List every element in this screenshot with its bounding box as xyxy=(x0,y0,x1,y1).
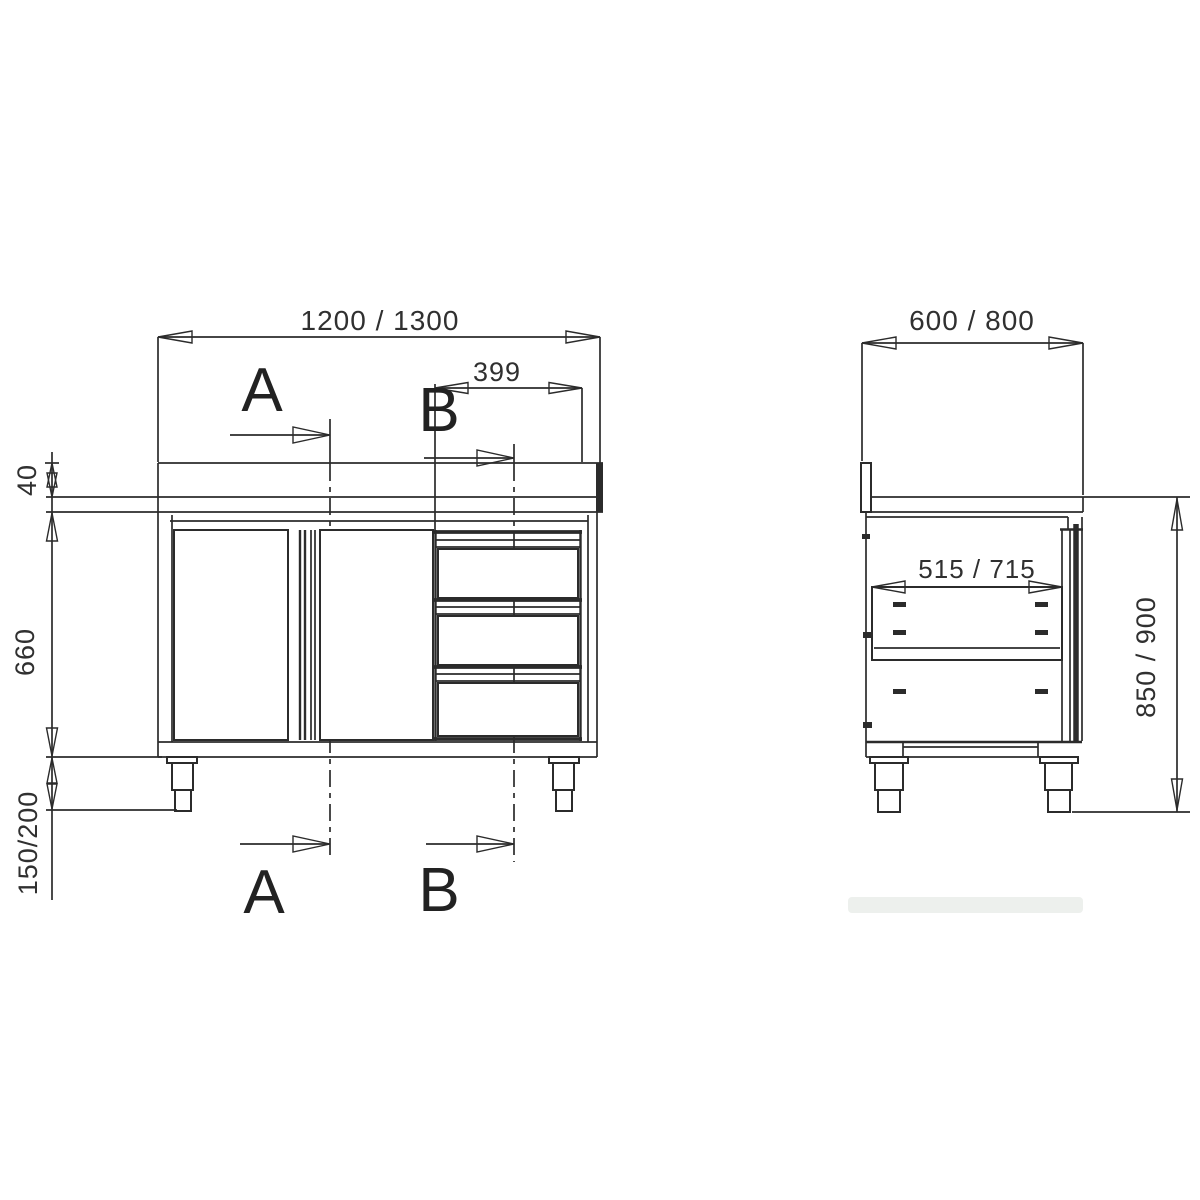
dimension-working-height: 850 / 900 xyxy=(1072,497,1190,812)
section-b-label: B xyxy=(418,376,459,445)
leg-foot xyxy=(556,790,572,811)
drawer-front-3 xyxy=(438,683,578,736)
worktop-front xyxy=(46,463,603,512)
dimension-overall-width: 1200 / 1300 xyxy=(158,305,600,512)
watermark-smudge xyxy=(848,897,1083,913)
drawer-block-front xyxy=(434,530,582,741)
drawer-side: 515 / 715 xyxy=(872,554,1062,694)
leg-foot xyxy=(175,790,191,811)
drawer-front-2 xyxy=(438,616,578,665)
leg-foot xyxy=(1048,790,1070,812)
drawing-canvas: 1200 / 1300 399 A B xyxy=(0,0,1200,1200)
sliding-door-right xyxy=(320,530,433,740)
drawer-slide-mark xyxy=(893,602,906,607)
drawer-block-width-label: 399 xyxy=(473,357,521,387)
leg-height-label: 150/200 xyxy=(13,791,43,896)
overall-width-label: 1200 / 1300 xyxy=(301,305,460,336)
section-a-bottom: A xyxy=(240,836,330,927)
leg-foot xyxy=(878,790,900,812)
wall-fitting-mark xyxy=(862,534,870,539)
drawer-slide-mark xyxy=(893,630,906,635)
drawer-slide-mark xyxy=(1035,602,1048,607)
drawer-slide-mark xyxy=(893,689,906,694)
leg-body xyxy=(553,763,574,790)
sliding-doors xyxy=(174,530,433,740)
legs-front xyxy=(167,757,579,811)
side-view: 600 / 800 xyxy=(848,305,1190,913)
section-b-label: B xyxy=(418,856,459,925)
legs-side xyxy=(870,757,1078,812)
drawer-slide-mark xyxy=(1035,689,1048,694)
dimension-overall-depth: 600 / 800 xyxy=(862,305,1083,495)
upstand-height-label: 40 xyxy=(12,464,42,496)
section-b-bottom: B xyxy=(418,836,514,925)
technical-drawing: 1200 / 1300 399 A B xyxy=(0,0,1200,1200)
worktop-side xyxy=(861,463,1190,512)
overall-depth-label: 600 / 800 xyxy=(909,305,1035,336)
drawer-inner-depth-label: 515 / 715 xyxy=(918,554,1035,584)
leg-body xyxy=(875,763,903,790)
dimension-leg-height: 150/200 xyxy=(13,757,177,895)
worktop-right-end-cap xyxy=(596,463,603,512)
wall-fitting-mark xyxy=(863,722,872,728)
leg-body xyxy=(1045,763,1072,790)
working-height-label: 850 / 900 xyxy=(1131,596,1161,718)
wall-fitting-mark xyxy=(863,632,872,638)
section-a-label: A xyxy=(241,356,283,425)
front-view: 1200 / 1300 399 A B xyxy=(10,305,603,927)
section-a-label: A xyxy=(243,858,285,927)
drawer-front-1 xyxy=(438,549,578,598)
body-height-label: 660 xyxy=(10,628,40,676)
drawer-box xyxy=(872,587,1062,660)
upstand-profile xyxy=(861,463,871,512)
drawer-slide-mark xyxy=(1035,630,1048,635)
sliding-door-left xyxy=(174,530,288,740)
leg-body xyxy=(172,763,193,790)
dimension-body-height: 660 xyxy=(10,513,58,756)
